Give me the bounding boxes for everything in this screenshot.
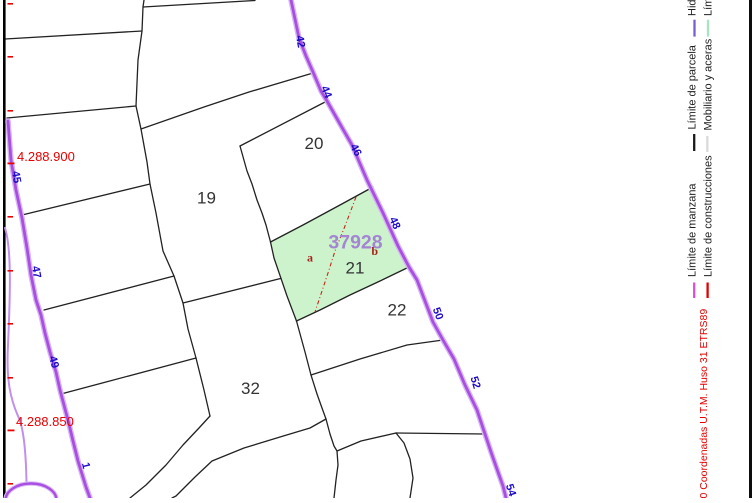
- svg-text:Hidrografía: Hidrografía: [687, 0, 699, 16]
- svg-text:Límite de construcciones: Límite de construcciones: [703, 155, 715, 277]
- svg-text:47: 47: [29, 265, 43, 279]
- svg-text:42: 42: [293, 35, 307, 49]
- svg-text:21: 21: [346, 259, 365, 278]
- svg-text:Límite de manzana: Límite de manzana: [687, 183, 699, 277]
- svg-text:20: 20: [305, 134, 324, 153]
- svg-text:b: b: [371, 244, 378, 258]
- svg-text:4.288.850: 4.288.850: [16, 414, 74, 429]
- svg-text:19: 19: [197, 189, 216, 208]
- svg-text:Límite de parcela: Límite de parcela: [687, 44, 699, 129]
- svg-text:45: 45: [9, 170, 23, 184]
- svg-text:32: 32: [241, 379, 260, 398]
- svg-text:4.288.900: 4.288.900: [17, 149, 75, 164]
- svg-text:22: 22: [388, 301, 407, 320]
- svg-text:a: a: [307, 251, 313, 265]
- svg-text:Mobiliario y aceras: Mobiliario y aceras: [703, 38, 715, 130]
- svg-text:0 Coordenadas U.T.M. Huso 31 E: 0 Coordenadas U.T.M. Huso 31 ETRS89: [698, 309, 710, 498]
- svg-text:Límites municipales: Límites municipales: [703, 0, 715, 16]
